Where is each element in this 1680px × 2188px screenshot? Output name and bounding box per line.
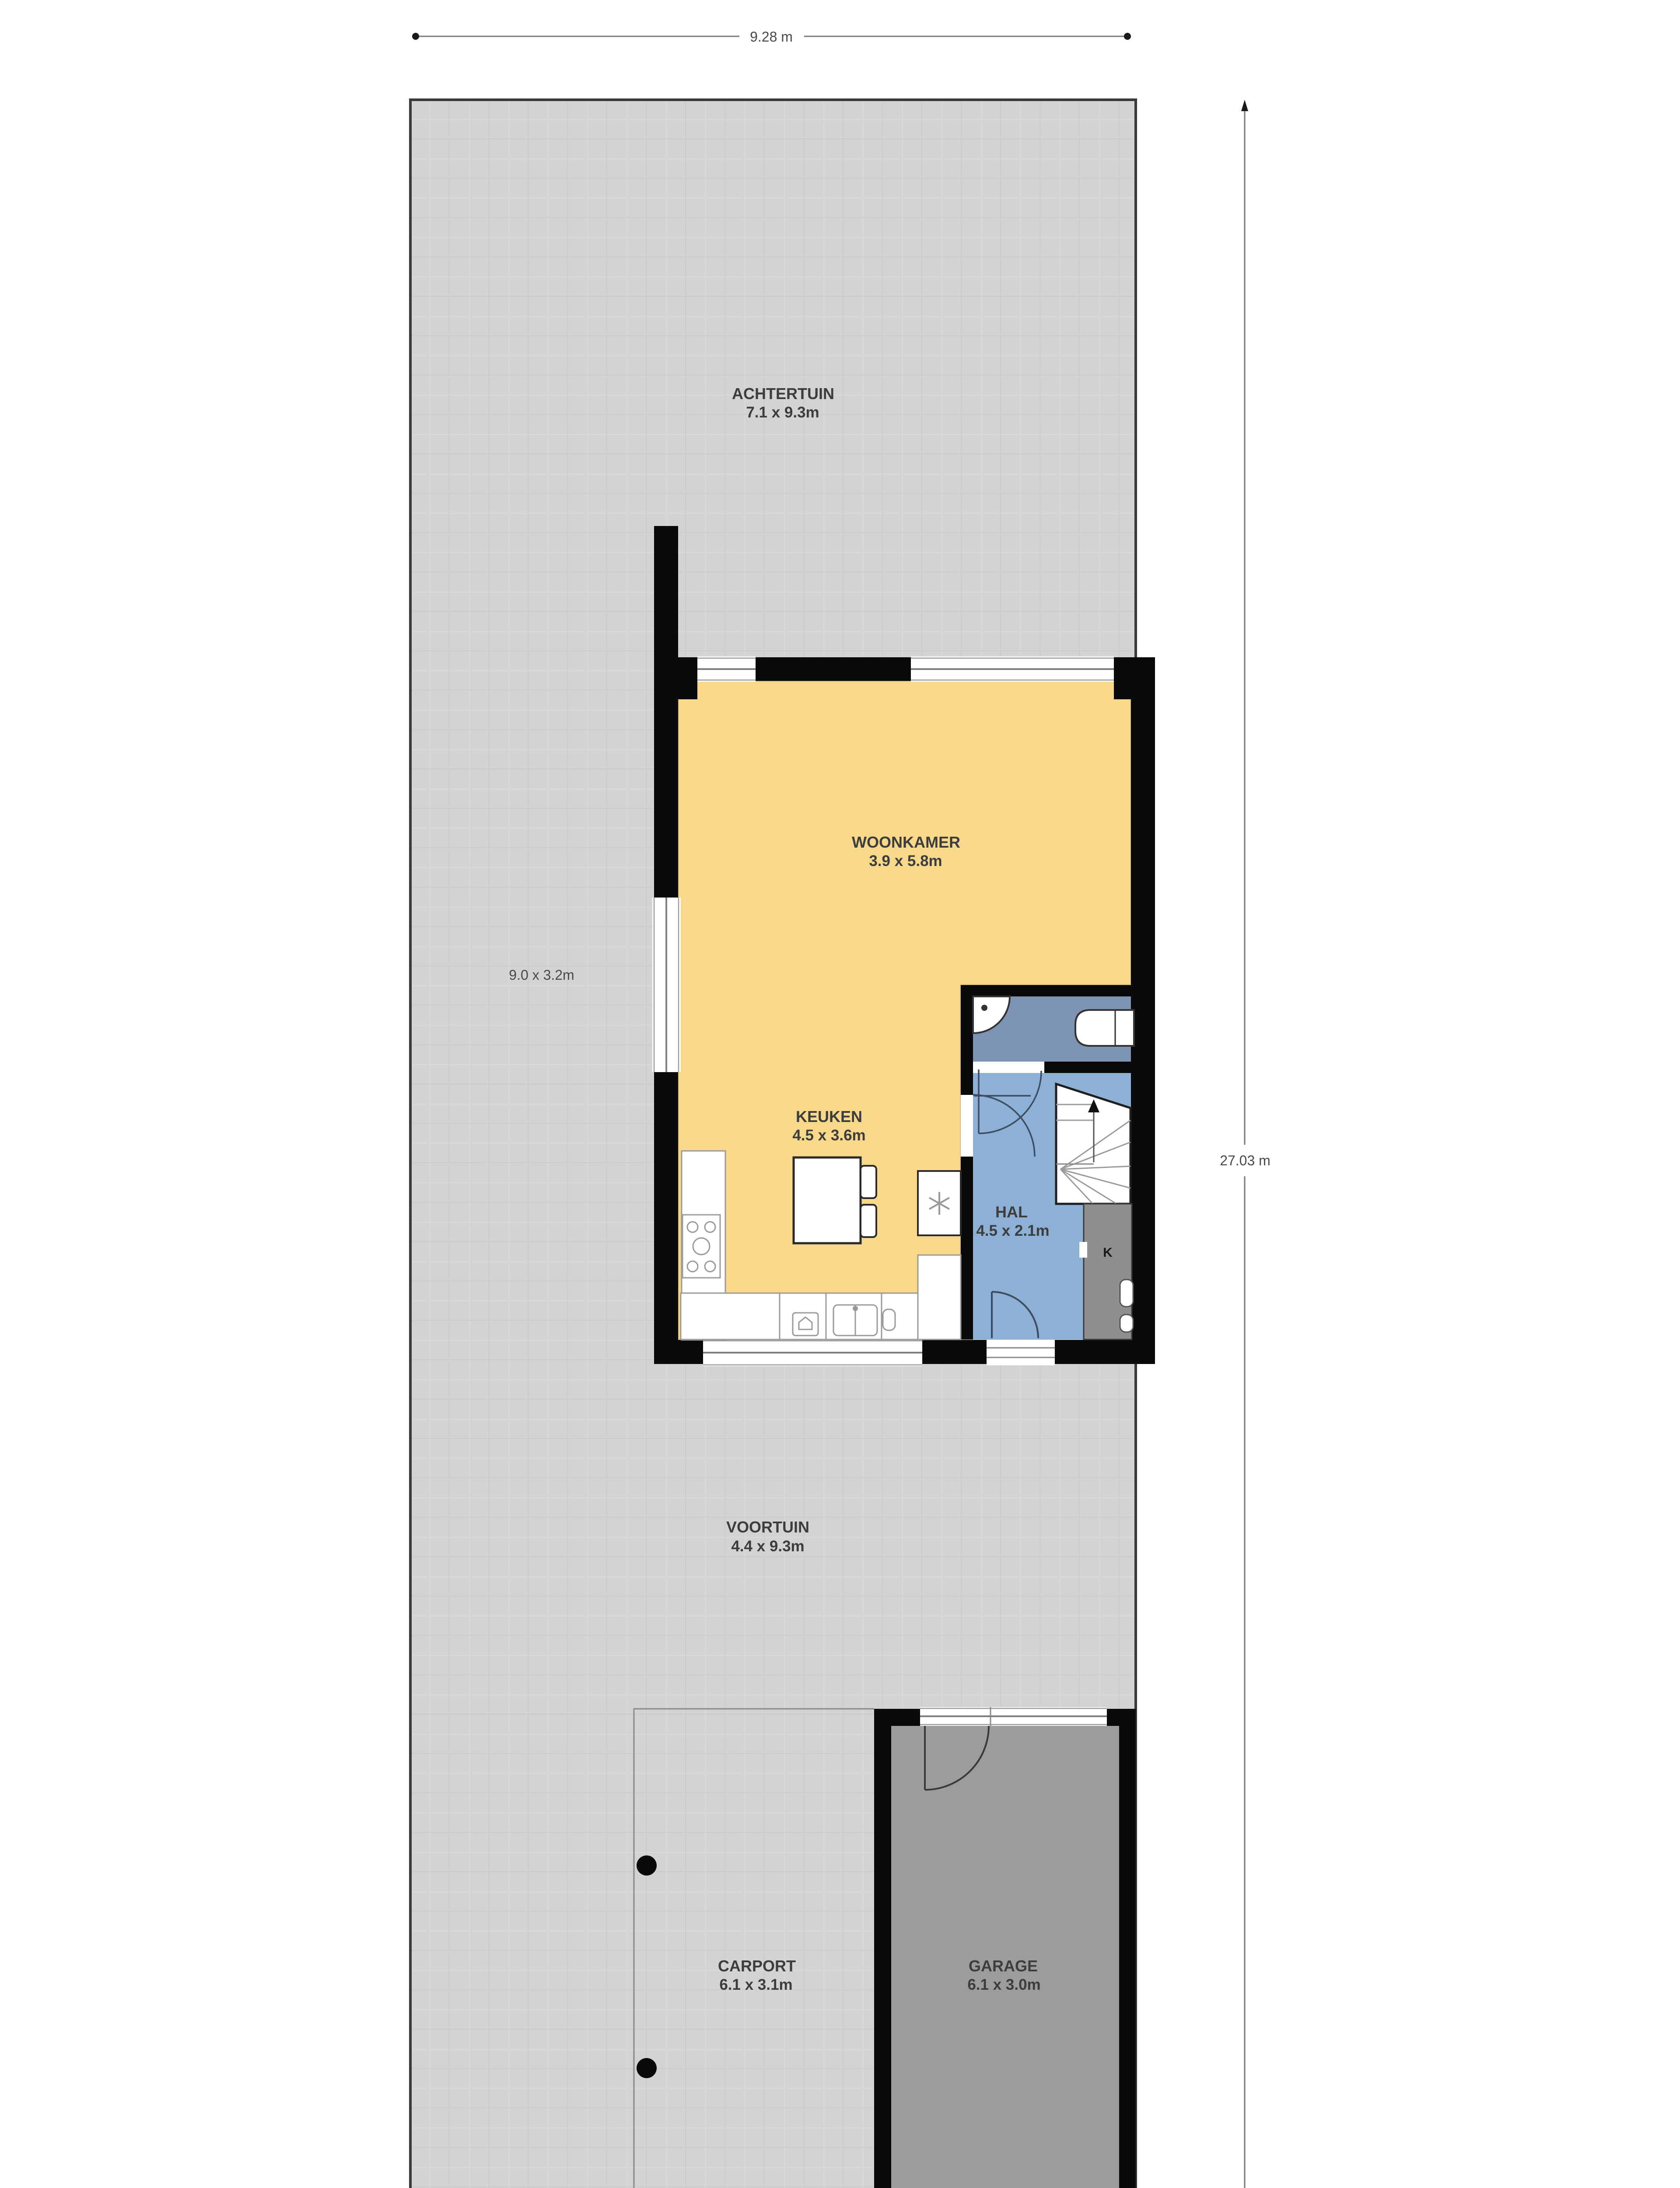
svg-text:ACHTERTUIN: ACHTERTUIN xyxy=(732,385,834,403)
svg-text:GARAGE: GARAGE xyxy=(969,1957,1038,1975)
svg-text:4.4 x 9.3m: 4.4 x 9.3m xyxy=(731,1538,804,1555)
svg-text:HAL: HAL xyxy=(995,1203,1028,1221)
svg-text:K: K xyxy=(1103,1245,1113,1260)
svg-text:VOORTUIN: VOORTUIN xyxy=(726,1518,809,1536)
svg-text:7.1 x 9.3m: 7.1 x 9.3m xyxy=(746,404,819,421)
svg-text:KEUKEN: KEUKEN xyxy=(796,1108,862,1126)
svg-text:4.5 x 3.6m: 4.5 x 3.6m xyxy=(792,1127,865,1144)
svg-text:9.0 x 3.2m: 9.0 x 3.2m xyxy=(509,967,574,983)
svg-text:27.03 m: 27.03 m xyxy=(1220,1153,1270,1168)
svg-text:WOONKAMER: WOONKAMER xyxy=(852,833,960,851)
svg-text:3.9 x 5.8m: 3.9 x 5.8m xyxy=(869,852,942,870)
svg-text:6.1 x 3.1m: 6.1 x 3.1m xyxy=(719,1976,792,1993)
svg-text:CARPORT: CARPORT xyxy=(718,1957,796,1975)
svg-text:6.1 x 3.0m: 6.1 x 3.0m xyxy=(967,1976,1040,1993)
svg-text:4.5 x 2.1m: 4.5 x 2.1m xyxy=(976,1222,1049,1239)
svg-text:9.28 m: 9.28 m xyxy=(750,29,793,45)
